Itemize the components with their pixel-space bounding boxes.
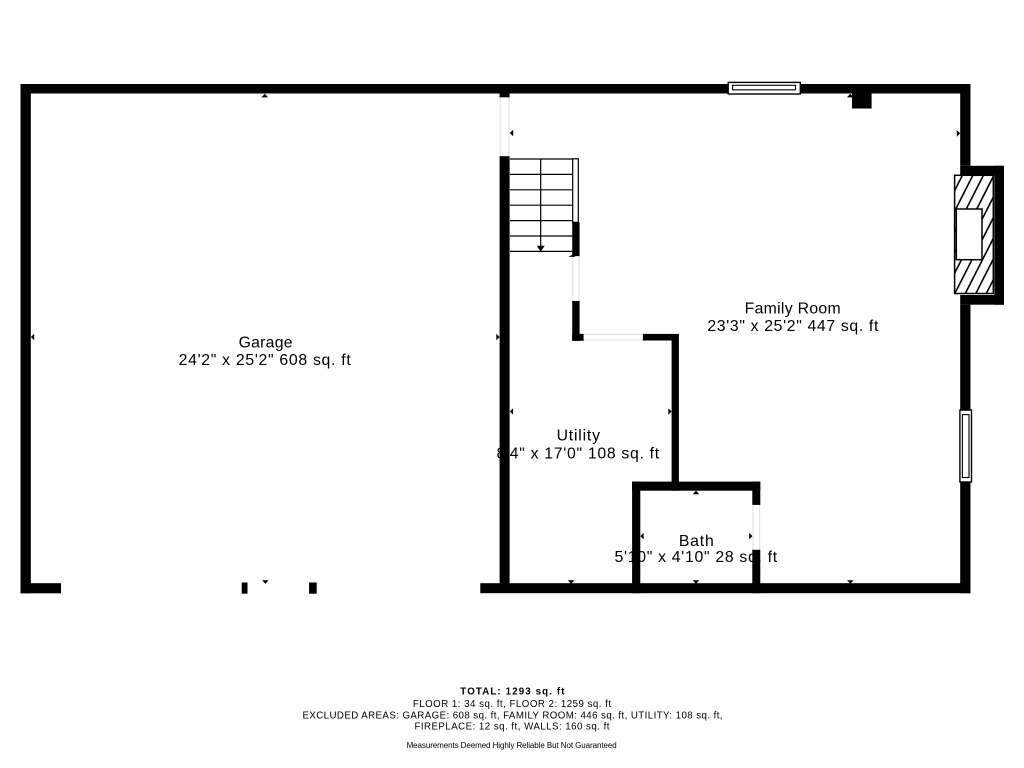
svg-text:24'2" x 25'2" 608 sq. ft: 24'2" x 25'2" 608 sq. ft (179, 352, 352, 369)
svg-text:8'4" x 17'0" 108 sq. ft: 8'4" x 17'0" 108 sq. ft (497, 445, 660, 462)
svg-text:FIREPLACE: 12 sq. ft, WALLS: 1: FIREPLACE: 12 sq. ft, WALLS: 160 sq. ft (414, 722, 610, 733)
svg-text:23'3" x 25'2" 447 sq. ft: 23'3" x 25'2" 447 sq. ft (707, 318, 879, 335)
svg-text:EXCLUDED AREAS: GARAGE: 608 sq: EXCLUDED AREAS: GARAGE: 608 sq. ft, FAMI… (302, 710, 723, 721)
svg-text:Garage: Garage (239, 335, 293, 352)
svg-text:Bath: Bath (679, 533, 715, 550)
svg-text:FLOOR 1: 34 sq. ft, FLOOR 2: 1: FLOOR 1: 34 sq. ft, FLOOR 2: 1259 sq. ft (413, 699, 612, 710)
svg-text:Measurements Deemed Highly Rel: Measurements Deemed Highly Reliable But … (407, 741, 617, 750)
svg-text:Utility: Utility (557, 428, 601, 445)
svg-text:TOTAL: 1293 sq. ft: TOTAL: 1293 sq. ft (460, 687, 565, 698)
svg-text:Family Room: Family Room (745, 301, 841, 318)
